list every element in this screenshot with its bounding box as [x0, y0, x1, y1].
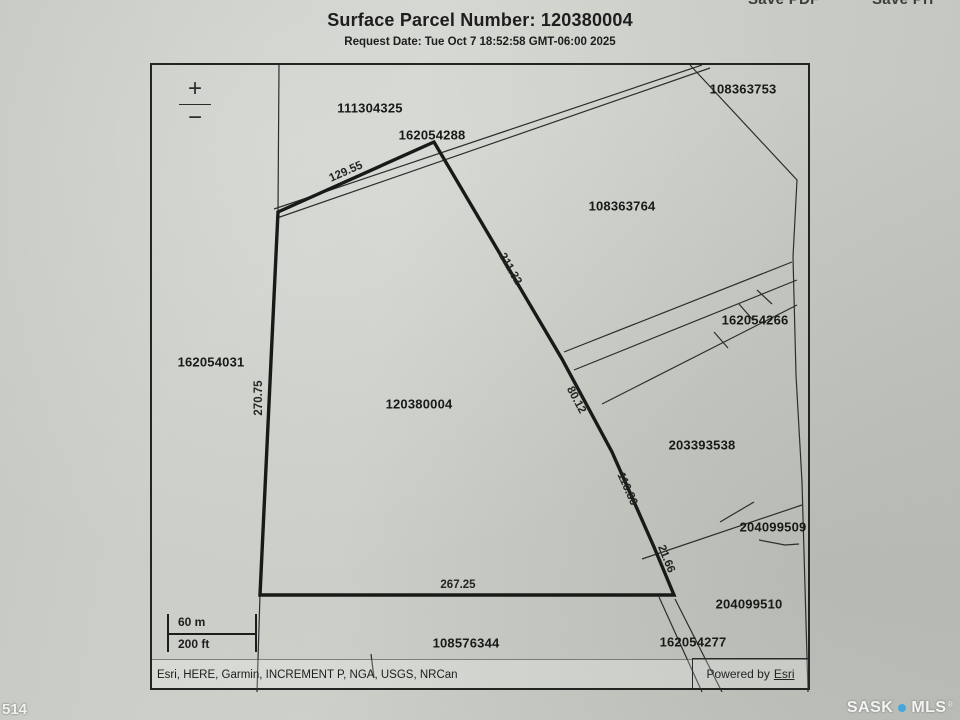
parcel-label-203393538: 203393538 [669, 438, 736, 453]
scanned-parcel-document: { "colors": { "paper": "#ced1ca", "ink":… [0, 0, 960, 720]
parcel-label-120380004-main: 120380004 [386, 397, 453, 412]
parcel-label-162054266: 162054266 [722, 313, 789, 328]
parcel-label-108363753: 108363753 [710, 82, 777, 97]
measurement-267-25: 267.25 [440, 579, 475, 591]
road-line-nw-2 [277, 68, 710, 218]
parcel-label-111304325: 111304325 [337, 101, 402, 116]
boundary-east-strip [793, 257, 796, 375]
sask-logo-text: SASK [847, 699, 893, 717]
save-pdf-button[interactable]: Save PDF [748, 0, 820, 8]
parcel-label-108576344: 108576344 [433, 636, 500, 651]
zoom-out-button[interactable]: − [170, 106, 220, 132]
scale-tick-right [255, 614, 257, 652]
lot-tick-3 [757, 290, 772, 304]
request-date: Request Date: Tue Oct 7 18:52:58 GMT-06:… [150, 36, 810, 48]
save-print-button[interactable]: Save Pri [872, 0, 934, 8]
document-header: Surface Parcel Number: 120380004 Request… [150, 10, 810, 48]
page-title: Surface Parcel Number: 120380004 [150, 10, 810, 31]
page-number: 514 [2, 701, 27, 718]
road-line-nw-1 [274, 65, 702, 209]
map-attribution-text: Esri, HERE, Garmin, INCREMENT P, NGA, US… [157, 669, 458, 681]
parcel-label-204099509: 204099509 [740, 520, 807, 535]
map-scale-bar: 60 m 200 ft [162, 613, 262, 655]
parcel-label-204099510: 204099510 [716, 597, 783, 612]
brand-dot-icon [898, 704, 906, 712]
parcel-lines-svg [152, 65, 812, 692]
sask-mls-logo: SASK MLS ® [847, 699, 954, 717]
section-line-west-upper [278, 65, 279, 212]
measurement-270-75: 270.75 [253, 380, 265, 415]
parcel-label-162054288: 162054288 [399, 128, 466, 143]
parcel-label-162054277: 162054277 [660, 635, 727, 650]
registered-trademark-symbol: ® [948, 700, 954, 709]
parcel-map[interactable]: + − 111304325 162054288 108363753 108363… [150, 63, 810, 690]
zoom-in-button[interactable]: + [170, 77, 220, 103]
powered-by-esri: Powered by Esri [692, 658, 808, 688]
map-zoom-control: + − [170, 77, 220, 132]
parcel-label-108363764: 108363764 [589, 199, 656, 214]
scale-imperial-label: 200 ft [178, 637, 209, 651]
scale-metric-label: 60 m [178, 615, 205, 629]
road-line-east-1 [564, 262, 792, 352]
boundary-204099509-3 [759, 540, 799, 545]
scale-bar-line [168, 633, 256, 635]
mls-logo-text: MLS [911, 699, 946, 717]
esri-link[interactable]: Esri [774, 667, 795, 681]
parcel-label-162054031: 162054031 [178, 355, 245, 370]
powered-by-prefix: Powered by [706, 667, 769, 681]
